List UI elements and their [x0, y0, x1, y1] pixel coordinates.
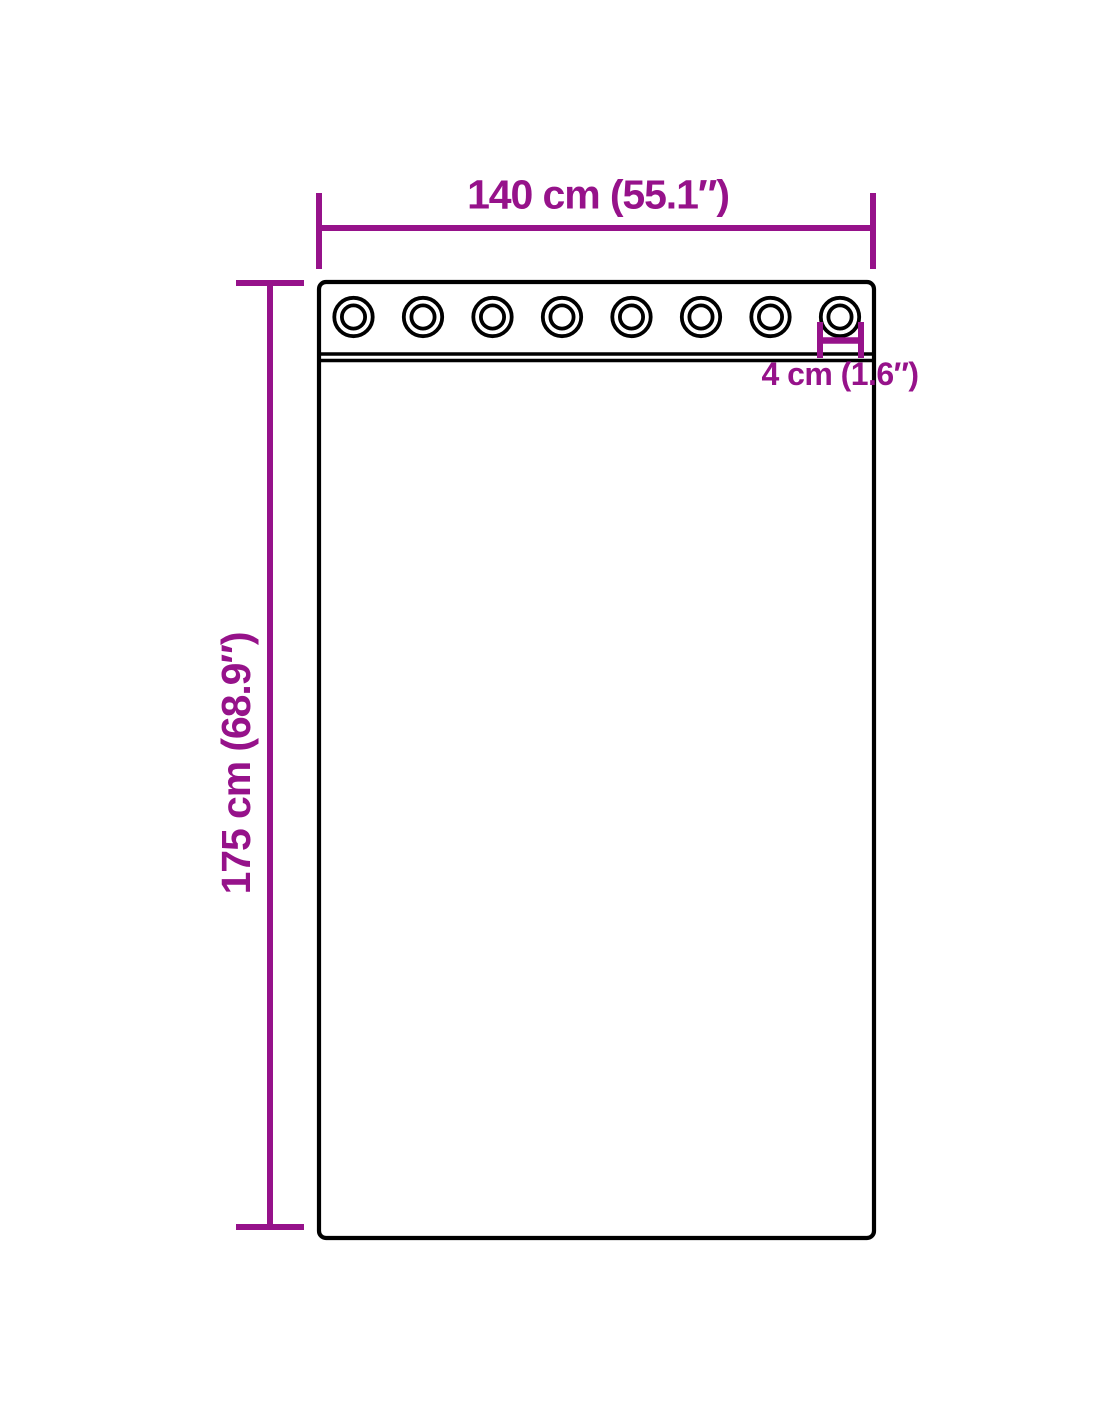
svg-text:140 cm (55.1″): 140 cm (55.1″)	[467, 172, 729, 218]
svg-text:4 cm (1.6″): 4 cm (1.6″)	[762, 356, 919, 392]
svg-text:175 cm (68.9″): 175 cm (68.9″)	[213, 633, 259, 895]
